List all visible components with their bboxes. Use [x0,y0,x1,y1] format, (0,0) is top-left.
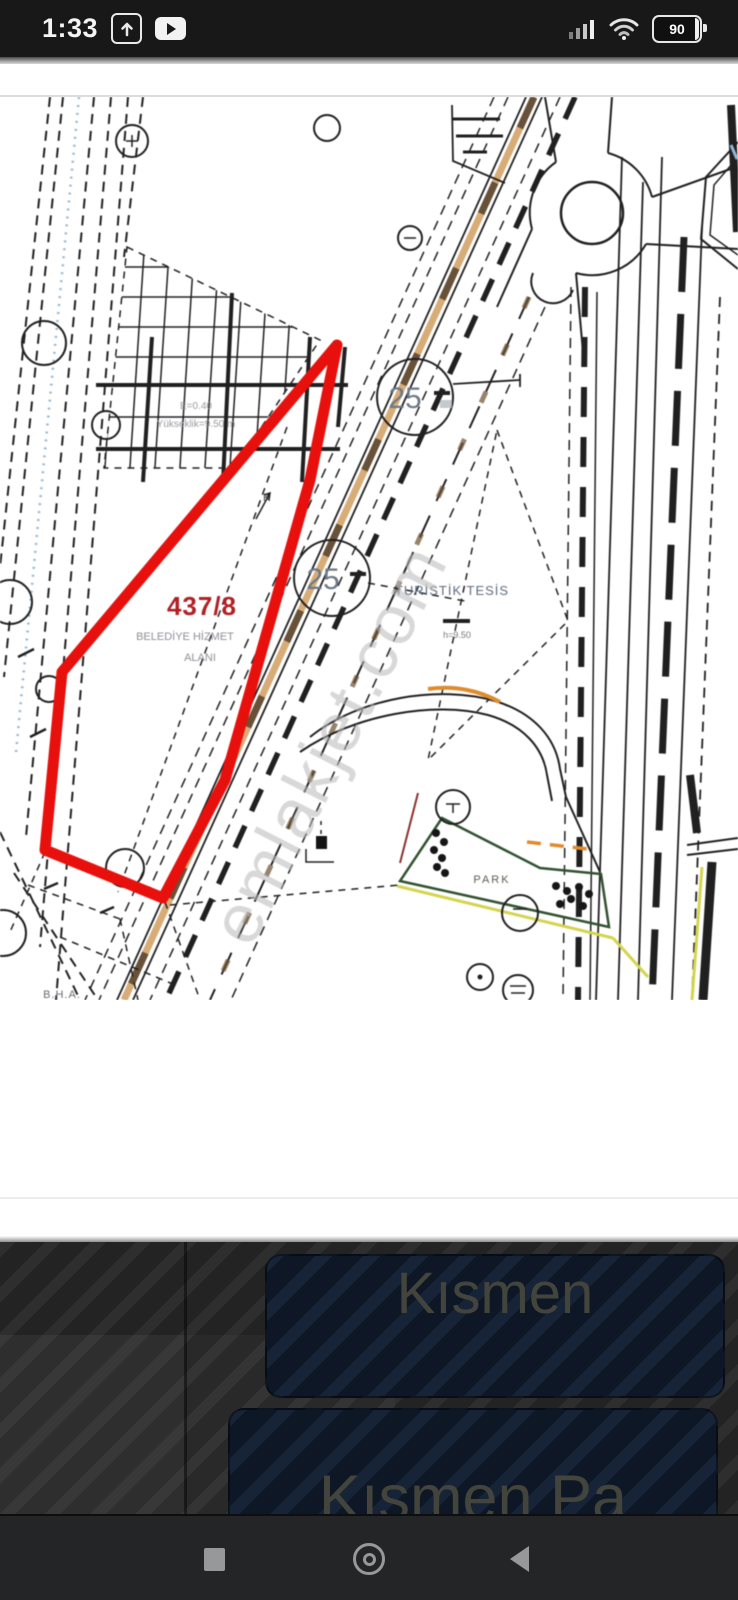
signal-icon [568,18,596,40]
road-width-label-2: 25 [306,563,339,596]
panel-background-block-left [0,1335,185,1514]
facility-note: h=9.50 [443,630,471,640]
road-width-label-1: 25 [388,382,421,415]
back-button[interactable] [474,1516,564,1600]
clock: 1:33 [42,13,98,44]
zoning-map-image[interactable]: E=0.40 Yükseklik=9.50 m [0,97,738,1000]
youtube-icon [155,17,186,40]
screen-edge-shadow [0,57,738,64]
parcel-use-line1: BELEDİYE HİZMET [136,630,234,643]
battery-charge-segment [695,18,699,40]
android-nav-bar [0,1514,738,1600]
option-kismen-label: Kısmen [267,1260,723,1327]
back-triangle-icon [510,1546,529,1572]
battery-percent: 90 [669,21,685,37]
status-bar: 1:33 90 [0,0,738,57]
status-bar-right: 90 [568,15,702,43]
recents-button[interactable] [169,1516,259,1600]
home-button[interactable] [324,1516,414,1600]
option-kismen-button[interactable]: Kısmen [265,1254,725,1398]
main-road-bundle [85,97,575,1000]
hatched-zone-block: E=0.40 Yükseklik=9.50 m [95,237,348,482]
battery-icon: 90 [652,15,702,43]
parcel-number-label: 437/8 [167,591,237,621]
home-circle-icon [353,1543,385,1575]
park-label: PARK [473,874,510,886]
parcel-use-line2: ALANI [184,652,216,664]
section-divider [0,1197,738,1199]
zoning-map-svg: E=0.40 Yükseklik=9.50 m [0,97,738,1000]
phone-screen: 1:33 90 [0,0,738,1600]
right-road-bundle [596,105,738,1000]
upload-icon [111,13,142,44]
panel-seam [184,1242,187,1514]
status-bar-left: 1:33 [42,13,186,44]
recents-square-icon [204,1548,225,1571]
zoning-note-line2: Yükseklik=9.50 m [157,419,236,430]
wifi-icon [609,17,639,40]
zoning-note-line1: E=0.40 [180,401,212,412]
area-abbrev-label: B.H.A. [43,989,81,1000]
listing-options-panel: Kısmen Kısmen Pa [0,1242,738,1514]
park-area: PARK [397,790,648,1000]
